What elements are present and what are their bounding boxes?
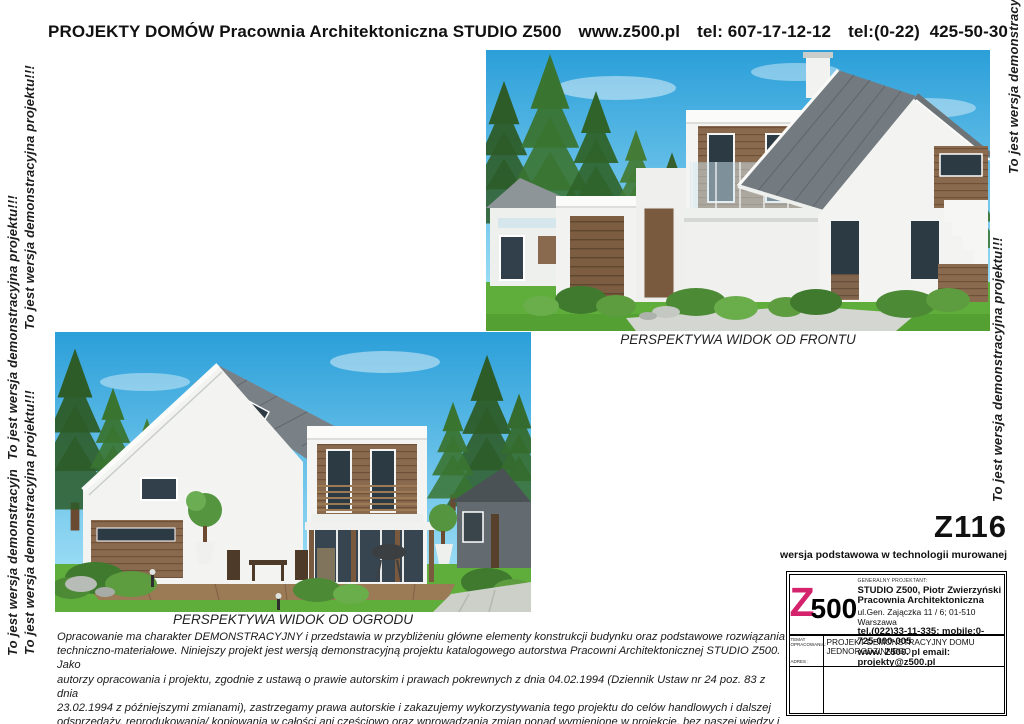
caption-front-view: PERSPEKTYWA WIDOK OD FRONTU: [486, 332, 990, 347]
z500-logo: Z 500: [790, 575, 858, 634]
empty-value-cell: [824, 667, 1004, 713]
page-header: PROJEKTY DOMÓW Pracownia Architektoniczn…: [48, 22, 998, 42]
pergola-beam: [305, 522, 437, 530]
empty-labels-cell: [790, 667, 824, 713]
disclaimer-line: odsprzedaży, reprodukowania/ kopiowania …: [57, 715, 787, 724]
strip-window: [97, 528, 175, 541]
company-web-email: www. Z500. pl email: projekty@z500.pl: [858, 648, 1002, 669]
caption-garden-view: PERSPEKTYWA WIDOK OD OGRODU: [55, 612, 531, 627]
project-sheet-page: PROJEKTY DOMÓW Pracownia Architektoniczn…: [0, 0, 1024, 724]
disclaimer-text: Opracowanie ma charakter DEMONSTRACYJNY …: [57, 630, 787, 724]
front-view-illustration: [486, 50, 990, 331]
title-block: Z 500 GENERALNY PROJEKTANT: STUDIO Z500,…: [786, 571, 1007, 716]
disclaimer-line: autorzy opracowania i projektu, zgodnie …: [57, 673, 787, 701]
title-block-company-row: Z 500 GENERALNY PROJEKTANT: STUDIO Z500,…: [790, 575, 1004, 636]
title-block-inner: Z 500 GENERALNY PROJEKTANT: STUDIO Z500,…: [789, 574, 1005, 714]
temat-label: TEMAT OPRACOWANIA:: [790, 636, 823, 647]
disclaimer-line: Opracowanie ma charakter DEMONSTRACYJNY …: [57, 630, 787, 644]
disclaimer-line: techniczno-materiałowe. Niniejszy projek…: [57, 644, 787, 672]
disclaimer-line: 23.02.1994 z późniejszymi zmianami), zas…: [57, 701, 787, 715]
render-garden-view: [55, 332, 531, 612]
gable-window: [940, 154, 982, 176]
balcony-window: [371, 450, 395, 512]
cloud: [556, 76, 676, 100]
watermark-left-inner-2: To jest wersja demonstracyjna projektu!!…: [22, 342, 37, 655]
balcony-window: [327, 450, 351, 512]
z500-logo-500: 500: [811, 595, 858, 623]
rock: [95, 587, 115, 597]
project-variant: wersja podstawowa w technologii murowane…: [770, 549, 1007, 561]
cloud: [330, 351, 440, 373]
side-window: [910, 220, 940, 280]
rock: [639, 312, 657, 320]
front-door: [644, 208, 674, 298]
project-code: Z116: [786, 509, 1007, 545]
gable-window: [141, 478, 177, 500]
watermark-right-inner: To jest wersja demonstracyjna projektu!!…: [990, 190, 1005, 502]
header-phone-1: tel: 607-17-12-12: [697, 22, 831, 42]
adres-label: ADRES :: [791, 659, 809, 664]
watermark-left-inner-1: To jest wersja demonstracyjna projektu!!…: [22, 20, 37, 330]
company-address: ul.Gen. Zajączka 11 / 6; 01-510 Warszawa: [858, 607, 1002, 627]
cloud: [100, 373, 190, 391]
rock: [65, 576, 97, 592]
designer-label: GENERALNY PROJEKTANT:: [858, 578, 1002, 584]
garage-door: [570, 216, 624, 298]
garden-view-illustration: [55, 332, 531, 612]
header-phone-2: tel:(0-22) 425-50-30: [848, 22, 1008, 42]
header-website: www.z500.pl: [579, 22, 681, 42]
watermark-left-outer-2: To jest wersja demonstracyjna projektu!!…: [5, 470, 20, 656]
company-type: Pracownia Architektoniczna: [858, 596, 1002, 607]
header-studio-title: PROJEKTY DOMÓW Pracownia Architektoniczn…: [48, 22, 562, 42]
watermark-right-outer: To jest wersja demonstracyjna projektu!!…: [1006, 0, 1021, 174]
subject-labels-cell: TEMAT OPRACOWANIA: ADRES :: [790, 636, 824, 666]
render-front-view: [486, 50, 990, 331]
watermark-left-outer-1: To jest wersja demonstracyjna projektu!!…: [5, 150, 20, 460]
company-info: GENERALNY PROJEKTANT: STUDIO Z500, Piotr…: [858, 575, 1004, 634]
company-phones: tel.(022)33-11-335; mobile:0-725-000-005: [858, 627, 1002, 648]
title-block-empty-row: [790, 667, 1004, 713]
